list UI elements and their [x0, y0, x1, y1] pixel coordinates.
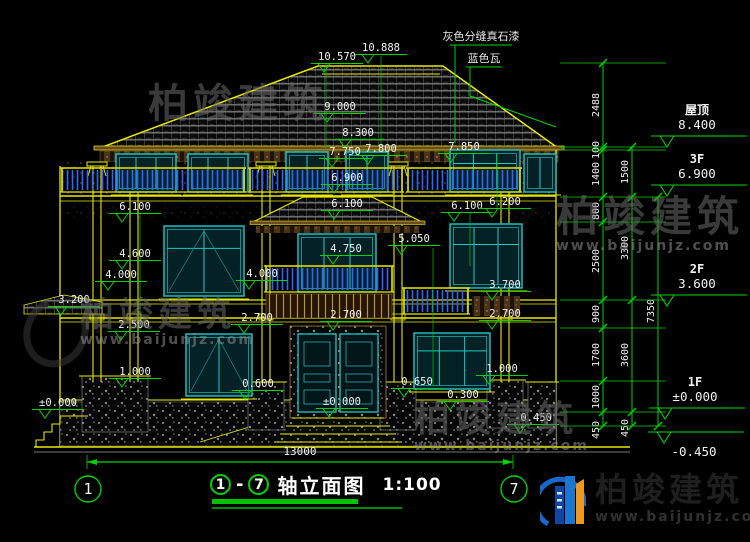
- column-plinth: [79, 376, 151, 432]
- svg-text:2488: 2488: [591, 93, 602, 117]
- svg-text:6.200: 6.200: [489, 196, 521, 208]
- svg-text:7350: 7350: [646, 299, 657, 323]
- brand-site: www.baijunjz.com: [595, 509, 750, 525]
- svg-text:0.650: 0.650: [401, 376, 433, 388]
- svg-text:2.700: 2.700: [489, 308, 521, 320]
- balcony-railing: [402, 288, 470, 314]
- svg-text:6.900: 6.900: [678, 166, 716, 181]
- wood-panel: [266, 294, 392, 318]
- svg-text:3.600: 3.600: [678, 276, 716, 291]
- svg-text:3300: 3300: [620, 236, 631, 260]
- title-axis-circle-end: 7: [248, 474, 269, 495]
- svg-text:450: 450: [591, 421, 602, 439]
- level-marker: 4.600: [109, 248, 161, 269]
- title-axis-circle-start: 1: [210, 474, 231, 495]
- svg-text:6.100: 6.100: [119, 201, 151, 213]
- svg-text:±0.000: ±0.000: [672, 389, 717, 404]
- balcony-railing: [60, 168, 246, 192]
- svg-text:1500: 1500: [620, 160, 631, 184]
- svg-text:灰色分缝真石漆: 灰色分缝真石漆: [443, 29, 520, 43]
- svg-text:2.500: 2.500: [118, 319, 150, 331]
- floor-level-marker: 1F±0.000: [649, 375, 745, 419]
- dimension-chain: 150033003600450: [620, 143, 636, 437]
- svg-text:0.600: 0.600: [242, 378, 274, 390]
- svg-text:3F: 3F: [690, 152, 704, 166]
- svg-text:6.900: 6.900: [331, 172, 363, 184]
- building-elevation: [24, 56, 630, 452]
- floor-level-marker: 3F6.900: [651, 152, 747, 196]
- cad-canvas: 10.57010.8889.0008.3007.7507.8007.8506.9…: [0, 0, 750, 542]
- dimension-chain: 7350: [646, 193, 662, 430]
- svg-text:900: 900: [591, 305, 602, 323]
- balcony-railing: [406, 168, 522, 192]
- svg-text:±0.000: ±0.000: [323, 396, 361, 408]
- svg-text:-0.450: -0.450: [671, 444, 716, 459]
- svg-text:2.700: 2.700: [330, 309, 362, 321]
- svg-text:-0.450: -0.450: [514, 412, 552, 424]
- svg-text:±0.000: ±0.000: [39, 397, 77, 409]
- svg-text:7.750: 7.750: [329, 146, 361, 158]
- svg-text:1.000: 1.000: [119, 366, 151, 378]
- window: [159, 226, 249, 299]
- svg-text:450: 450: [620, 419, 631, 437]
- svg-text:3600: 3600: [620, 343, 631, 367]
- svg-text:6.100: 6.100: [451, 200, 483, 212]
- svg-text:1000: 1000: [591, 385, 602, 409]
- svg-text:1.000: 1.000: [486, 363, 518, 375]
- floor-level-marker: 屋顶8.400: [651, 103, 747, 147]
- svg-text:蓝色瓦: 蓝色瓦: [468, 51, 501, 65]
- brand-logo: 柏竣建筑 www.baijunjz.com: [540, 466, 750, 532]
- svg-text:800: 800: [591, 202, 602, 220]
- svg-text:4.000: 4.000: [105, 269, 137, 281]
- svg-text:2.700: 2.700: [241, 312, 273, 324]
- axis-bubble: 1: [75, 476, 101, 502]
- svg-text:8.400: 8.400: [678, 117, 716, 132]
- svg-text:1: 1: [83, 480, 92, 498]
- svg-text:10.570: 10.570: [318, 51, 356, 63]
- svg-text:2500: 2500: [591, 249, 602, 273]
- svg-text:0.300: 0.300: [447, 389, 479, 401]
- svg-text:7.800: 7.800: [365, 143, 397, 155]
- title-dash: -: [236, 474, 243, 495]
- svg-text:1F: 1F: [688, 375, 702, 389]
- svg-text:8.300: 8.300: [342, 127, 374, 139]
- balcony-railing: [248, 168, 404, 192]
- svg-text:屋顶: 屋顶: [685, 103, 709, 117]
- level-marker: 4.000: [95, 269, 147, 290]
- svg-text:1700: 1700: [591, 343, 602, 367]
- title-text: 轴立面图: [277, 470, 365, 499]
- svg-text:4.750: 4.750: [330, 243, 362, 255]
- svg-text:10.888: 10.888: [362, 42, 400, 54]
- svg-text:1400: 1400: [591, 162, 602, 186]
- floor-level-marker: 2F3.600: [651, 262, 747, 306]
- dimension-chain: 24881001400800250090017001000450: [591, 59, 607, 439]
- elevation-svg: 10.57010.8889.0008.3007.7507.8007.8506.9…: [0, 0, 750, 542]
- title-underline-thick: [212, 499, 358, 504]
- window: [519, 154, 561, 195]
- axis-bubble: 7: [501, 476, 527, 502]
- level-marker: 5.050: [388, 233, 440, 254]
- floor-level-marker: -0.450: [648, 432, 744, 459]
- svg-text:4.600: 4.600: [119, 248, 151, 260]
- title-scale: 1:100: [382, 475, 441, 495]
- svg-text:5.050: 5.050: [398, 233, 430, 245]
- svg-text:7: 7: [509, 480, 518, 498]
- svg-text:4.000: 4.000: [246, 268, 278, 280]
- balcony-railing: [264, 266, 394, 292]
- title-underline-thin: [212, 507, 402, 509]
- brand-name: 柏竣建筑: [595, 473, 750, 506]
- svg-text:2F: 2F: [690, 262, 704, 276]
- brand-logo-icon: [540, 466, 586, 532]
- overall-width-dimension: 13000: [87, 445, 513, 469]
- svg-text:7.850: 7.850: [448, 141, 480, 153]
- svg-text:13000: 13000: [283, 445, 316, 458]
- svg-text:9.000: 9.000: [324, 101, 356, 113]
- drawing-title: 1 - 7 轴立面图 1:100: [210, 470, 442, 499]
- svg-text:6.100: 6.100: [331, 198, 363, 210]
- svg-text:3.700: 3.700: [489, 279, 521, 291]
- ground-line: [34, 447, 630, 452]
